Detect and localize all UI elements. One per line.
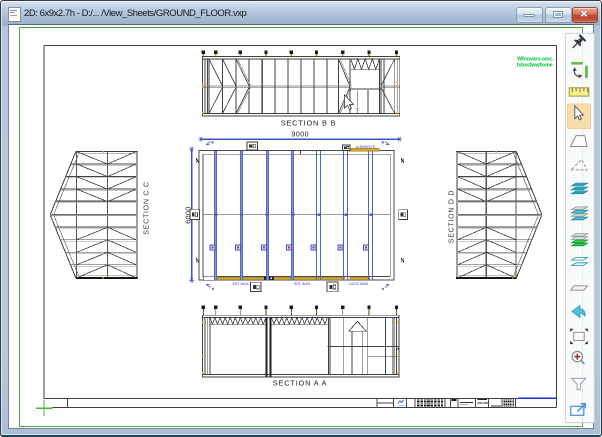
svg-text:S0T 3x04: S0T 3x04: [294, 282, 310, 286]
svg-text:SECTION D D: SECTION D D: [447, 190, 455, 243]
svg-text:SECTION B B: SECTION B B: [281, 118, 337, 127]
svg-text:txbxsfwwfxvne: txbxsfwwfxvne: [517, 62, 553, 68]
svg-text:UC03 3x03: UC03 3x03: [349, 282, 368, 286]
svg-text:SECTION A A: SECTION A A: [273, 379, 327, 388]
svg-text:S0T 3x04: S0T 3x04: [232, 282, 248, 286]
svg-text:SECTION C C: SECTION C C: [142, 181, 150, 234]
svg-text:A-B00/375: A-B00/375: [356, 144, 376, 149]
svg-text:9000: 9000: [292, 132, 310, 139]
svg-text:T::: T::: [356, 107, 361, 112]
